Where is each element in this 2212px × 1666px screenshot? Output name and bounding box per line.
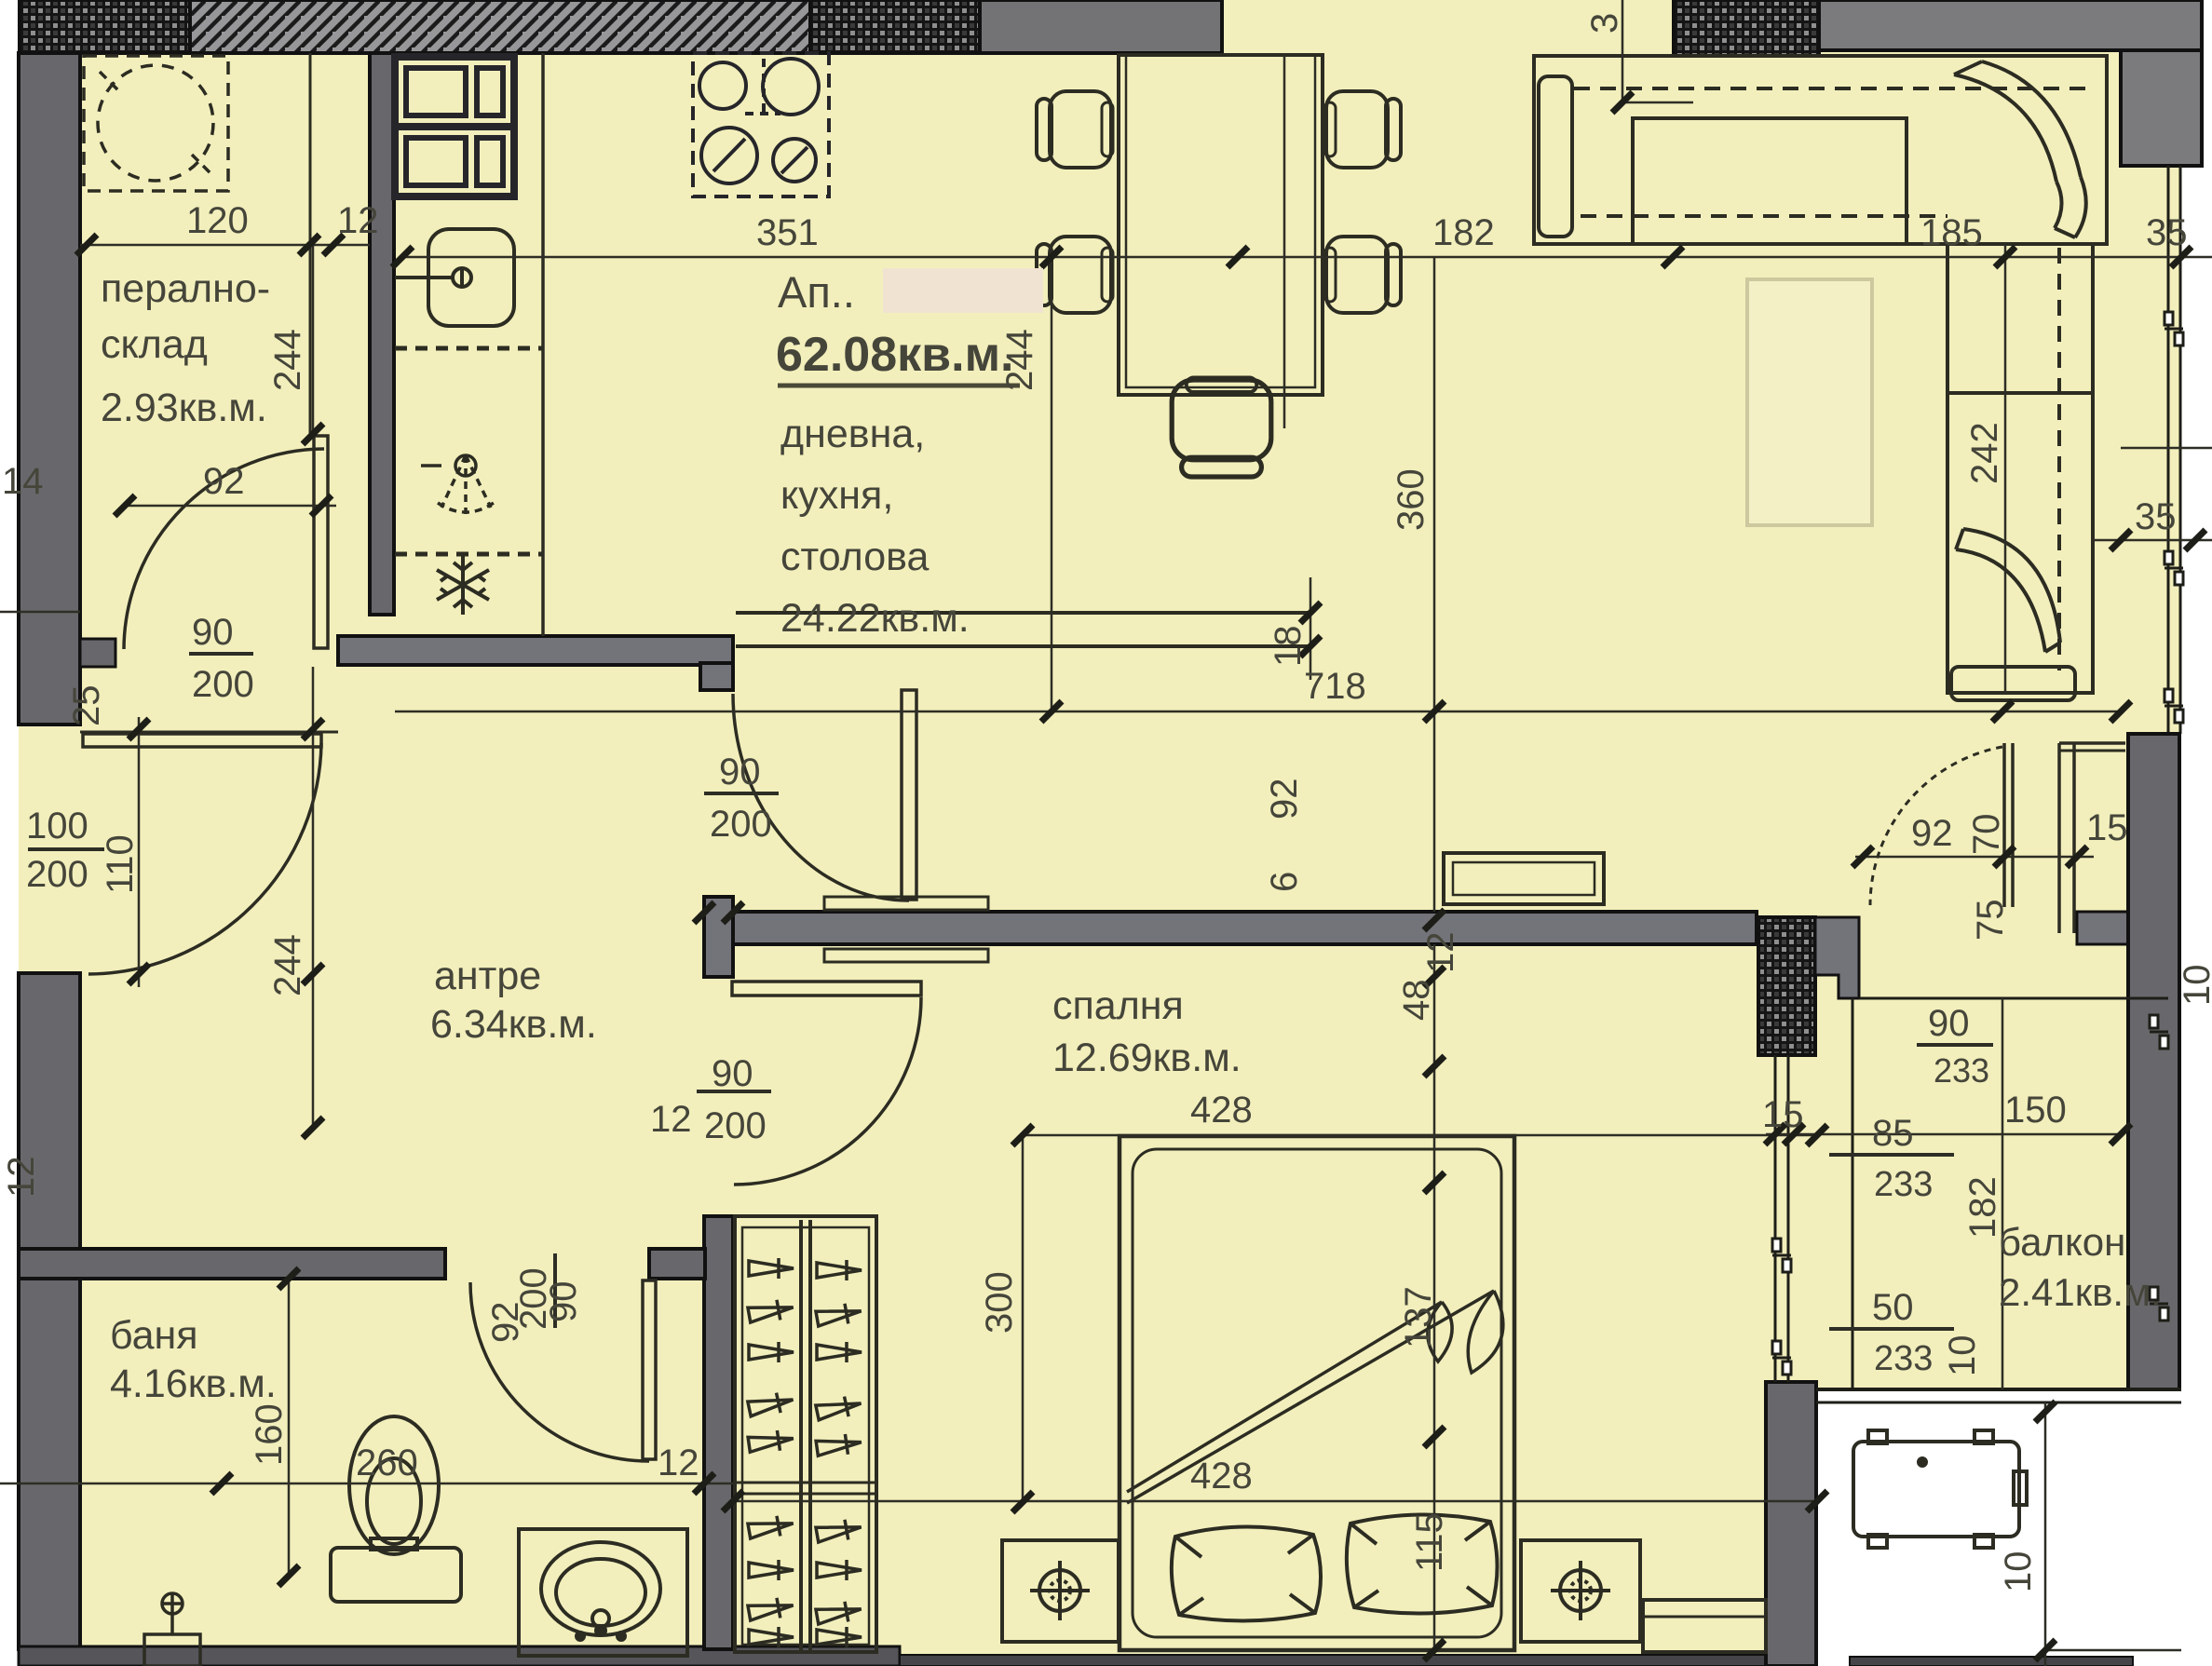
svg-text:351: 351 bbox=[756, 212, 819, 253]
svg-text:25: 25 bbox=[66, 685, 107, 727]
svg-text:спалня: спалня bbox=[1052, 983, 1184, 1028]
svg-text:балкон: балкон bbox=[1999, 1220, 2125, 1264]
svg-text:дневна,: дневна, bbox=[780, 412, 925, 456]
svg-text:182: 182 bbox=[1432, 212, 1495, 253]
svg-text:2.41кв.м.: 2.41кв.м. bbox=[1999, 1270, 2162, 1314]
svg-text:160: 160 bbox=[249, 1403, 290, 1466]
svg-text:137: 137 bbox=[1398, 1286, 1439, 1348]
svg-text:склад: склад bbox=[101, 322, 208, 367]
svg-text:6.34кв.м.: 6.34кв.м. bbox=[430, 1002, 597, 1047]
svg-text:14: 14 bbox=[2, 461, 44, 502]
svg-text:2.93кв.м.: 2.93кв.м. bbox=[101, 386, 267, 430]
svg-text:Ап..: Ап.. bbox=[778, 267, 855, 317]
svg-text:92: 92 bbox=[1911, 813, 1953, 854]
svg-text:62.08кв.м.: 62.08кв.м. bbox=[776, 328, 1013, 382]
svg-text:244: 244 bbox=[267, 934, 308, 996]
svg-text:360: 360 bbox=[1391, 468, 1432, 531]
svg-text:428: 428 bbox=[1190, 1090, 1253, 1131]
svg-text:115: 115 bbox=[1409, 1512, 1450, 1572]
svg-text:4.16кв.м.: 4.16кв.м. bbox=[110, 1361, 277, 1406]
svg-text:10: 10 bbox=[2177, 965, 2212, 1007]
svg-text:92: 92 bbox=[203, 461, 245, 502]
svg-text:244: 244 bbox=[999, 329, 1040, 391]
svg-text:85: 85 bbox=[1872, 1113, 1914, 1154]
svg-text:12: 12 bbox=[337, 200, 379, 241]
svg-text:233: 233 bbox=[1874, 1165, 1933, 1204]
svg-text:233: 233 bbox=[1874, 1339, 1933, 1378]
svg-text:15: 15 bbox=[2086, 807, 2128, 848]
svg-text:428: 428 bbox=[1190, 1456, 1253, 1497]
svg-text:12: 12 bbox=[650, 1099, 692, 1140]
svg-text:6: 6 bbox=[1264, 872, 1305, 892]
svg-text:300: 300 bbox=[979, 1271, 1020, 1334]
svg-text:35: 35 bbox=[2135, 496, 2177, 537]
svg-text:90: 90 bbox=[192, 612, 234, 653]
svg-text:90: 90 bbox=[719, 752, 761, 792]
svg-text:233: 233 bbox=[1934, 1051, 1989, 1090]
svg-text:15: 15 bbox=[1762, 1094, 1804, 1135]
svg-text:3: 3 bbox=[1584, 13, 1625, 34]
svg-text:200: 200 bbox=[710, 804, 772, 845]
svg-text:90: 90 bbox=[1928, 1003, 1970, 1044]
svg-text:баня: баня bbox=[110, 1313, 198, 1358]
svg-text:92: 92 bbox=[1264, 779, 1305, 820]
svg-text:кухня,: кухня, bbox=[780, 473, 893, 518]
svg-text:10: 10 bbox=[1998, 1551, 2039, 1593]
svg-text:70: 70 bbox=[1966, 814, 2007, 856]
svg-text:92: 92 bbox=[485, 1302, 526, 1344]
svg-text:24.22кв.м.: 24.22кв.м. bbox=[780, 596, 970, 641]
svg-text:перално-: перално- bbox=[101, 266, 270, 311]
svg-text:50: 50 bbox=[1872, 1287, 1914, 1328]
svg-text:185: 185 bbox=[1920, 212, 1983, 253]
svg-text:48: 48 bbox=[1396, 980, 1437, 1022]
svg-text:антре: антре bbox=[434, 954, 541, 998]
svg-text:18: 18 bbox=[1268, 626, 1309, 668]
svg-text:35: 35 bbox=[2146, 212, 2188, 253]
svg-text:12.69кв.м.: 12.69кв.м. bbox=[1052, 1036, 1242, 1080]
svg-text:90: 90 bbox=[712, 1053, 753, 1094]
svg-text:150: 150 bbox=[2004, 1090, 2067, 1131]
svg-text:столова: столова bbox=[780, 535, 930, 579]
svg-text:200: 200 bbox=[192, 664, 254, 705]
svg-text:244: 244 bbox=[267, 329, 308, 391]
svg-text:100: 100 bbox=[26, 806, 88, 847]
svg-text:12: 12 bbox=[1, 1157, 42, 1199]
svg-text:120: 120 bbox=[186, 200, 249, 241]
svg-text:110: 110 bbox=[100, 834, 141, 894]
svg-text:182: 182 bbox=[1962, 1176, 2003, 1239]
svg-text:10: 10 bbox=[1942, 1335, 1983, 1377]
svg-text:242: 242 bbox=[1964, 422, 2005, 484]
svg-text:200: 200 bbox=[704, 1105, 767, 1146]
svg-text:260: 260 bbox=[356, 1443, 418, 1483]
svg-text:718: 718 bbox=[1304, 666, 1366, 707]
svg-text:200: 200 bbox=[26, 854, 88, 895]
svg-text:12: 12 bbox=[658, 1443, 699, 1483]
svg-text:75: 75 bbox=[1970, 900, 2011, 941]
svg-text:12: 12 bbox=[1420, 932, 1461, 974]
